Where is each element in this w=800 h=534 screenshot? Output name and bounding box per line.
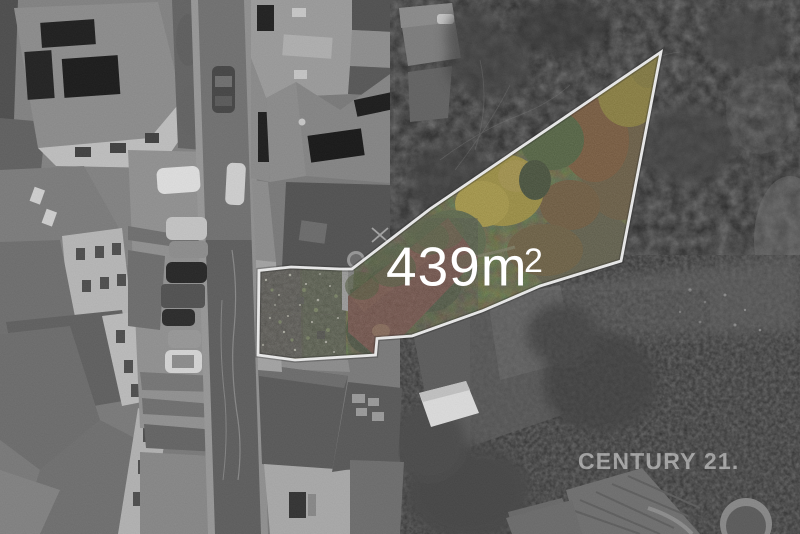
svg-text:2: 2 bbox=[524, 242, 543, 280]
svg-text:439m: 439m bbox=[386, 236, 528, 298]
svg-text:CENTURY 21.: CENTURY 21. bbox=[578, 448, 739, 474]
